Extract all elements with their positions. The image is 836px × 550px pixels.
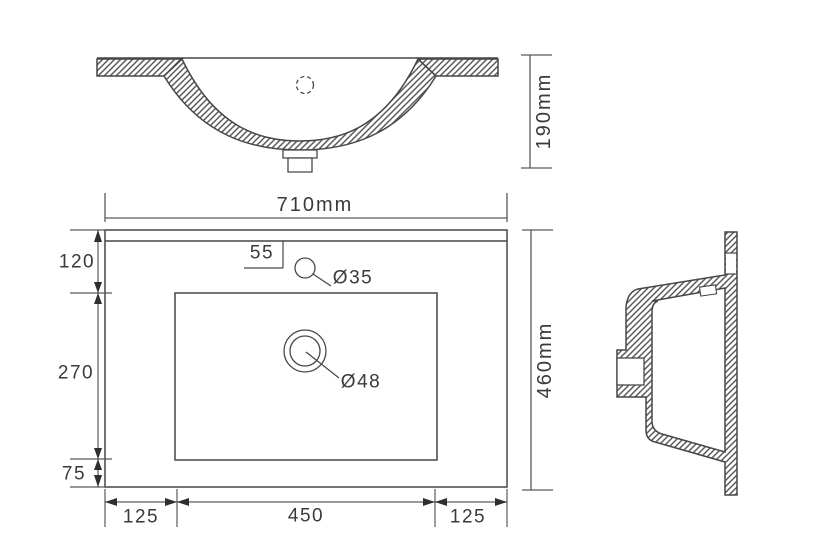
basin-drawing-svg xyxy=(0,0,836,550)
faucet-hole-diameter-label: Ø35 xyxy=(333,269,373,288)
front-view-drawing xyxy=(97,58,498,172)
bottom-dim-left-label: 125 xyxy=(123,508,159,527)
plan-depth-dim-label: 460mm xyxy=(535,322,555,399)
technical-drawing-canvas: 710mm 190mm 460mm 55 Ø35 Ø48 120 270 75 … xyxy=(0,0,836,550)
left-dim-top-label: 120 xyxy=(59,253,95,272)
left-dim-middle-label: 270 xyxy=(58,364,94,383)
plan-view-drawing xyxy=(105,230,507,487)
plan-width-dim-label: 710mm xyxy=(277,195,354,215)
bottom-dim-center-label: 450 xyxy=(288,507,324,526)
bottom-dim-right-label: 125 xyxy=(450,508,486,527)
front-height-dim-label: 190mm xyxy=(534,73,554,150)
faucet-offset-dim-label: 55 xyxy=(250,244,274,263)
drain-hole-diameter-label: Ø48 xyxy=(341,373,381,392)
side-view-drawing xyxy=(617,232,737,495)
left-dim-bottom-label: 75 xyxy=(62,465,86,484)
overflow-hole-outline xyxy=(297,77,314,94)
